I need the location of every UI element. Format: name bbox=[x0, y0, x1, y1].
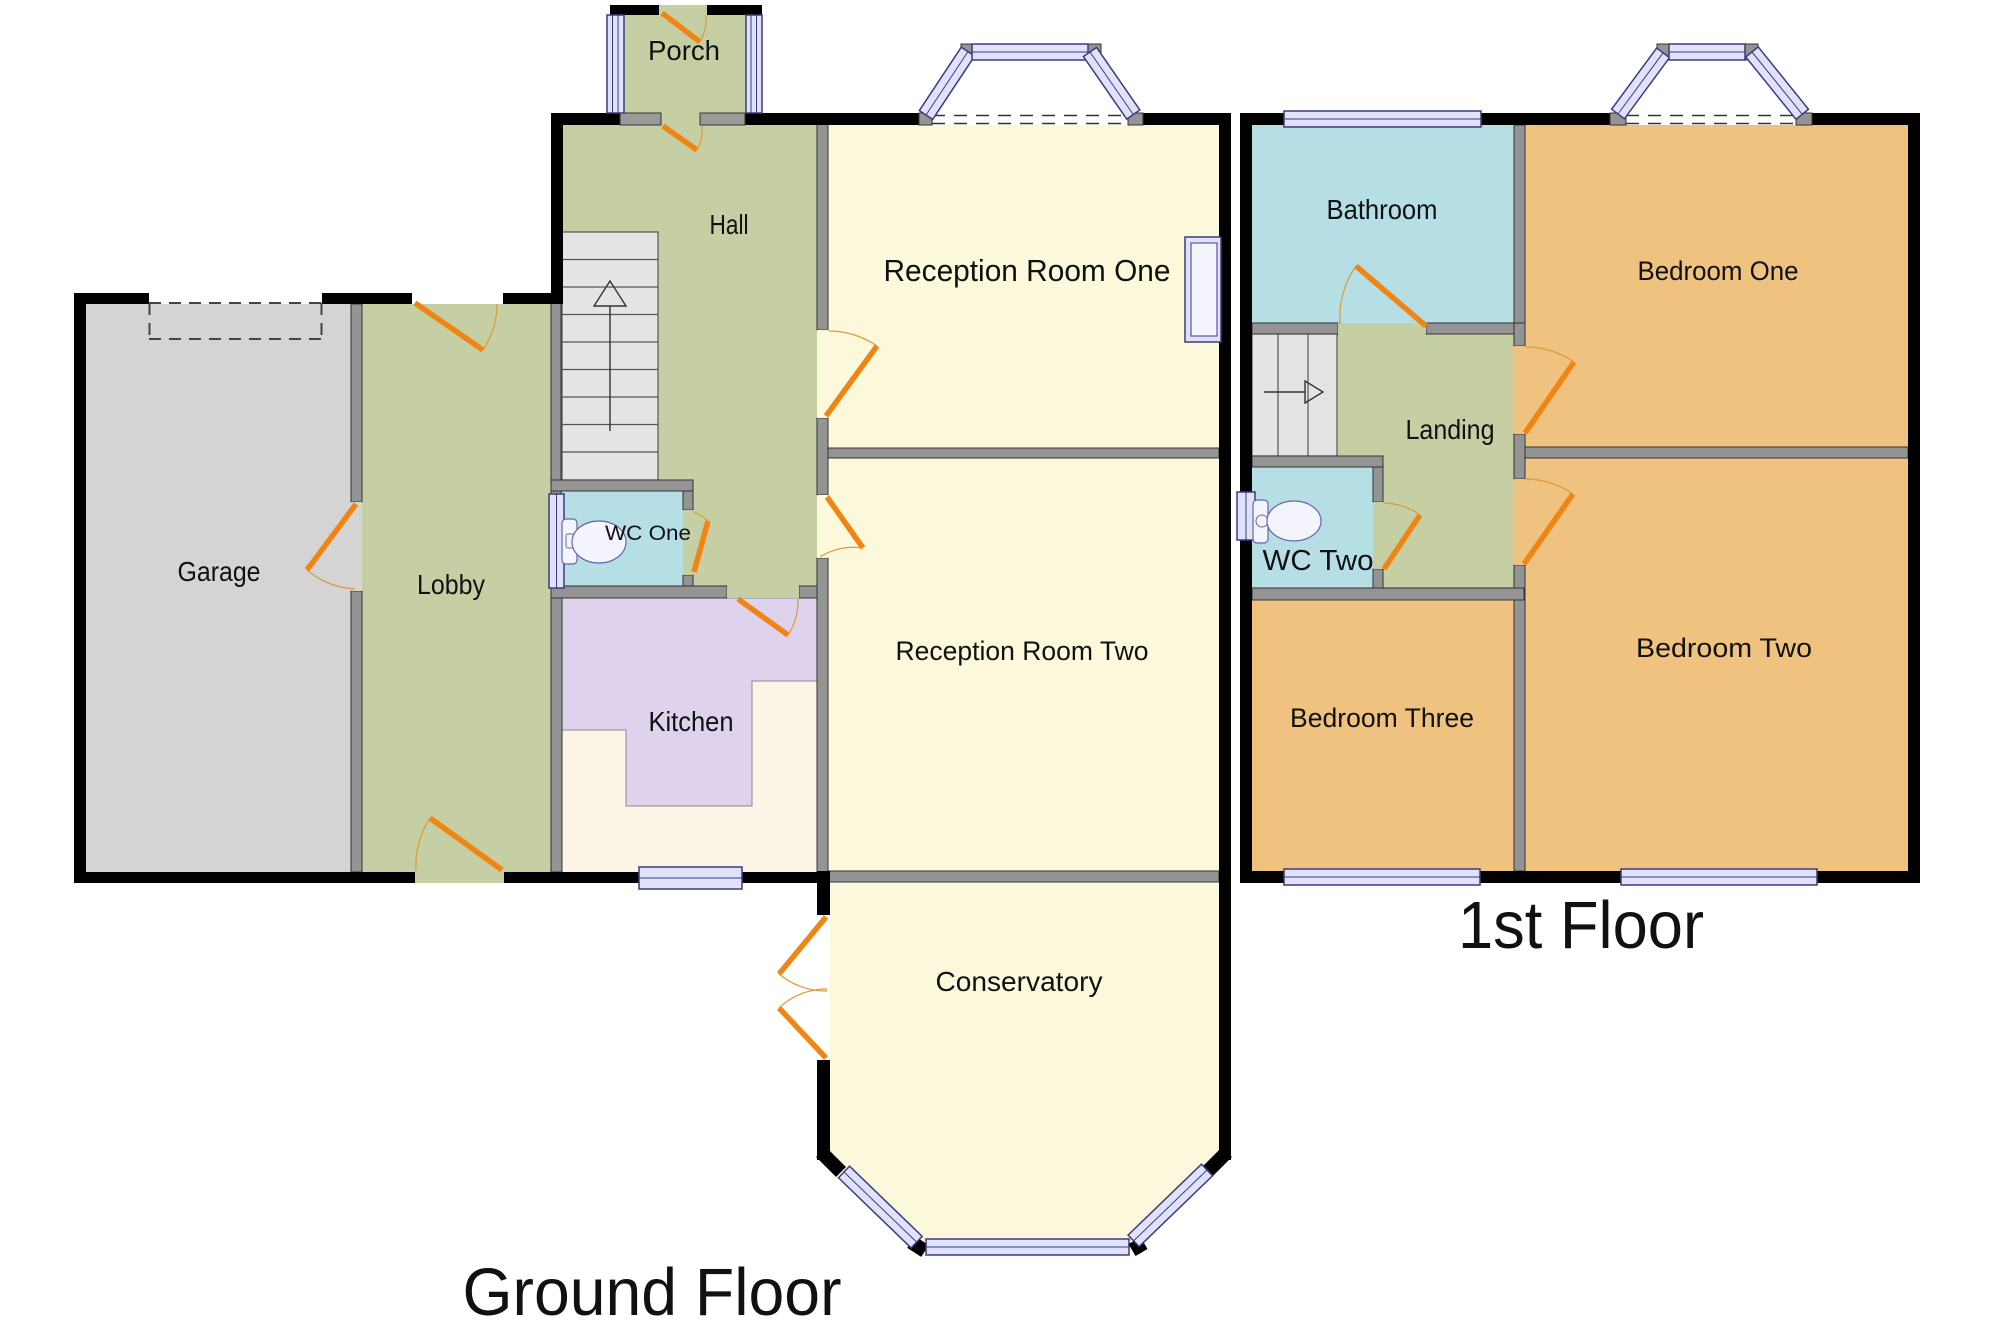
svg-text:Ground Floor: Ground Floor bbox=[463, 1255, 842, 1330]
svg-text:Reception Room One: Reception Room One bbox=[884, 253, 1171, 288]
svg-text:Conservatory: Conservatory bbox=[936, 966, 1103, 997]
svg-text:Bathroom: Bathroom bbox=[1327, 194, 1438, 225]
svg-text:Landing: Landing bbox=[1406, 414, 1495, 445]
svg-text:WC Two: WC Two bbox=[1263, 545, 1374, 577]
svg-text:Bedroom Two: Bedroom Two bbox=[1636, 633, 1812, 663]
svg-text:Hall: Hall bbox=[710, 209, 749, 240]
svg-text:WC One: WC One bbox=[605, 522, 691, 545]
svg-text:1st Floor: 1st Floor bbox=[1458, 888, 1704, 963]
svg-text:Reception Room Two: Reception Room Two bbox=[896, 636, 1149, 666]
svg-text:Garage: Garage bbox=[178, 556, 261, 587]
svg-text:Porch: Porch bbox=[648, 35, 720, 66]
svg-text:Kitchen: Kitchen bbox=[649, 706, 734, 737]
svg-text:Bedroom Three: Bedroom Three bbox=[1290, 703, 1474, 733]
svg-text:Bedroom One: Bedroom One bbox=[1638, 256, 1799, 286]
svg-text:Lobby: Lobby bbox=[417, 569, 485, 600]
